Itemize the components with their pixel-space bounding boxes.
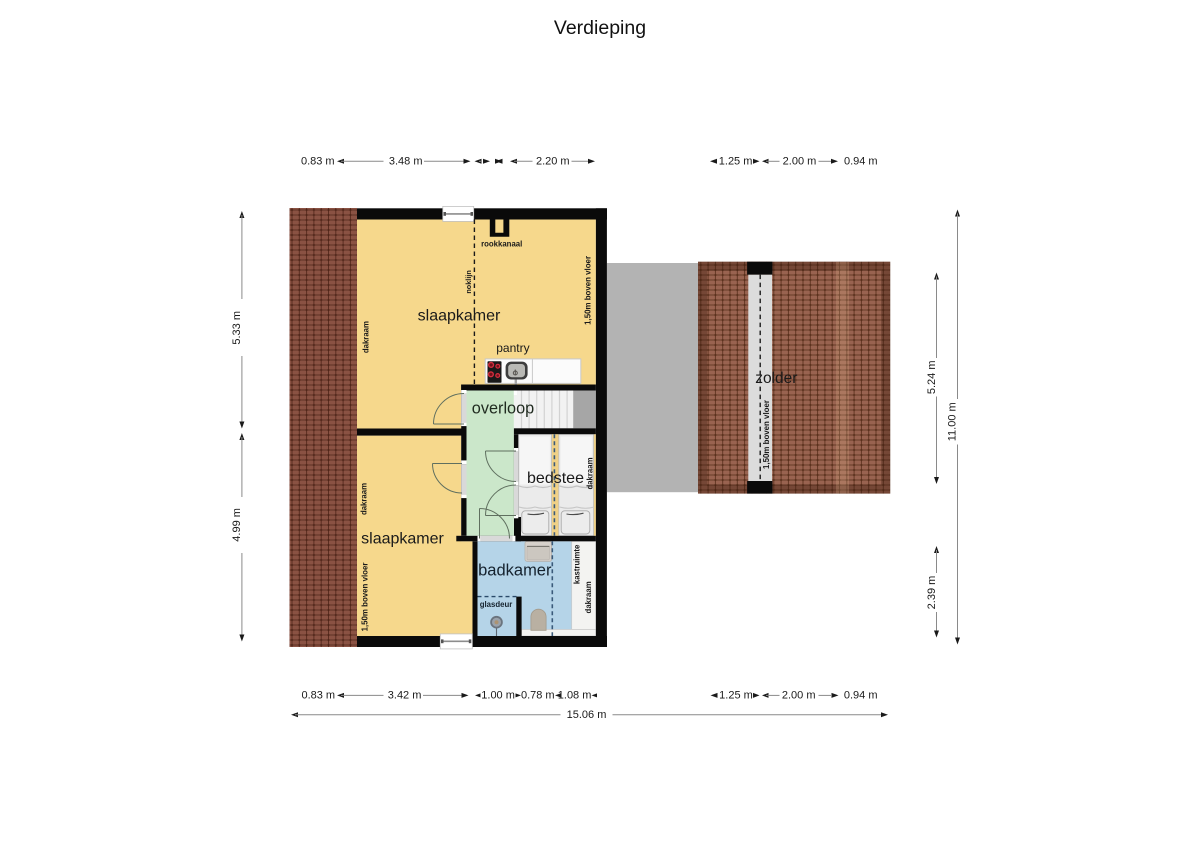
svg-text:Verdieping: Verdieping bbox=[554, 17, 646, 39]
svg-text:slaapkamer: slaapkamer bbox=[418, 308, 501, 325]
svg-text:4.99 m: 4.99 m bbox=[231, 508, 243, 542]
svg-text:glasdeur: glasdeur bbox=[480, 600, 513, 609]
svg-text:noklijn: noklijn bbox=[464, 270, 473, 294]
svg-text:3.42 m: 3.42 m bbox=[388, 690, 422, 702]
svg-text:slaapkamer: slaapkamer bbox=[361, 531, 444, 548]
svg-text:dakraam: dakraam bbox=[362, 321, 371, 353]
svg-text:2.00 m: 2.00 m bbox=[783, 156, 817, 168]
svg-text:5.33 m: 5.33 m bbox=[231, 311, 243, 345]
svg-text:2.00 m: 2.00 m bbox=[782, 690, 816, 702]
svg-text:1.08 m: 1.08 m bbox=[558, 690, 592, 702]
svg-text:1.25 m: 1.25 m bbox=[719, 156, 753, 168]
svg-text:0.83 m: 0.83 m bbox=[301, 690, 335, 702]
svg-text:rookkanaal: rookkanaal bbox=[481, 239, 522, 248]
svg-text:3.48 m: 3.48 m bbox=[389, 156, 423, 168]
svg-text:1,50m boven vloer: 1,50m boven vloer bbox=[762, 400, 771, 469]
svg-text:dakraam: dakraam bbox=[584, 581, 593, 613]
svg-text:dakraam: dakraam bbox=[586, 457, 595, 489]
svg-text:zolder: zolder bbox=[755, 370, 797, 387]
svg-text:bedstee: bedstee bbox=[527, 470, 584, 487]
svg-text:1.25 m: 1.25 m bbox=[719, 690, 753, 702]
svg-text:5.24 m: 5.24 m bbox=[926, 360, 938, 394]
svg-text:badkamer: badkamer bbox=[478, 562, 552, 580]
svg-text:1.00 m: 1.00 m bbox=[481, 690, 515, 702]
svg-text:1,50m boven vloer: 1,50m boven vloer bbox=[360, 563, 369, 632]
svg-text:dakraam: dakraam bbox=[359, 483, 368, 515]
svg-text:2.39 m: 2.39 m bbox=[926, 576, 938, 610]
svg-text:0.78 m: 0.78 m bbox=[521, 690, 555, 702]
svg-text:pantry: pantry bbox=[496, 341, 529, 355]
svg-text:overloop: overloop bbox=[472, 400, 534, 418]
svg-text:0.94 m: 0.94 m bbox=[844, 690, 878, 702]
svg-text:2.20 m: 2.20 m bbox=[536, 156, 570, 168]
svg-text:0.83 m: 0.83 m bbox=[301, 156, 335, 168]
svg-text:0.94 m: 0.94 m bbox=[844, 156, 878, 168]
svg-text:1,50m boven vloer: 1,50m boven vloer bbox=[584, 256, 593, 325]
svg-text:15.06 m: 15.06 m bbox=[567, 709, 607, 721]
svg-text:kastruimte: kastruimte bbox=[573, 544, 582, 584]
svg-text:11.00 m: 11.00 m bbox=[947, 402, 959, 441]
